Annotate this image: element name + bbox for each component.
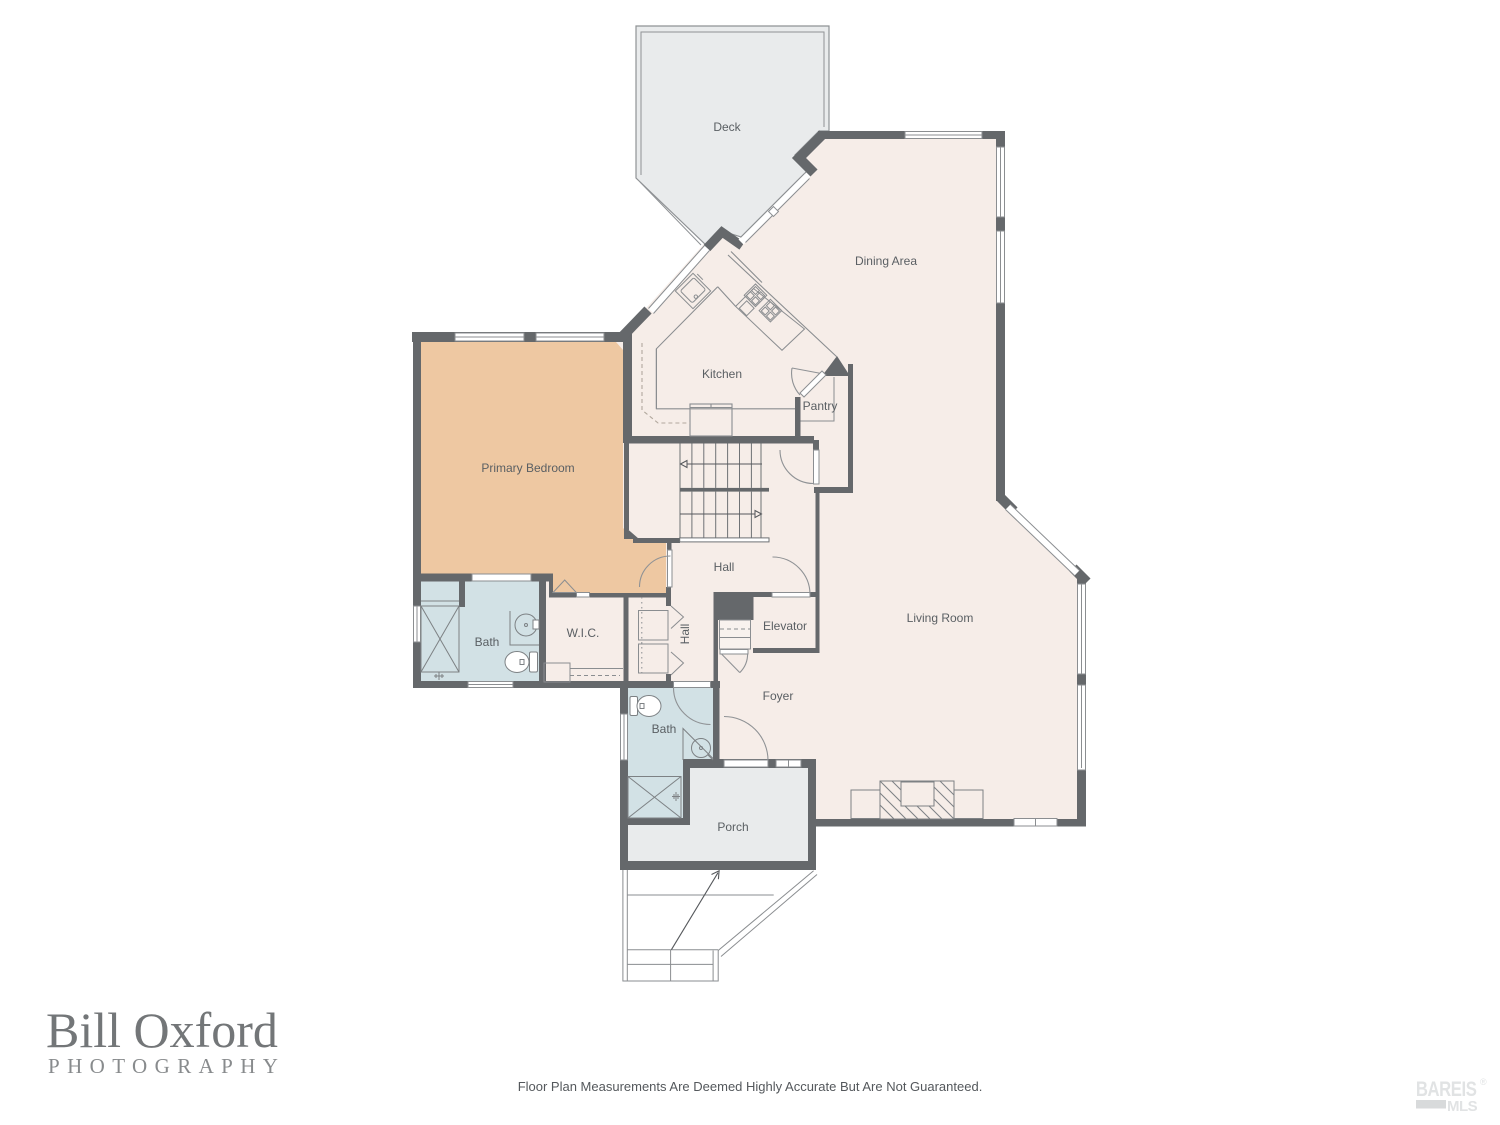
svg-text:Foyer: Foyer: [763, 689, 794, 703]
svg-text:Deck: Deck: [713, 120, 741, 134]
svg-text:W.I.C.: W.I.C.: [567, 626, 600, 640]
svg-text:Bath: Bath: [475, 635, 500, 649]
svg-text:PHOTOGRAPHY: PHOTOGRAPHY: [48, 1054, 285, 1078]
svg-text:Living Room: Living Room: [907, 611, 974, 625]
svg-text:Porch: Porch: [717, 820, 748, 834]
svg-text:Primary Bedroom: Primary Bedroom: [481, 461, 574, 475]
svg-text:Kitchen: Kitchen: [702, 367, 742, 381]
svg-text:Elevator: Elevator: [763, 619, 807, 633]
svg-text:MLS: MLS: [1447, 1098, 1478, 1115]
svg-text:Floor Plan Measurements Are De: Floor Plan Measurements Are Deemed Highl…: [518, 1079, 983, 1094]
svg-text:Dining Area: Dining Area: [855, 254, 917, 268]
svg-text:®: ®: [1480, 1077, 1487, 1087]
svg-text:Bill Oxford: Bill Oxford: [46, 1002, 278, 1058]
svg-text:Hall: Hall: [678, 624, 692, 645]
svg-text:Hall: Hall: [714, 560, 735, 574]
svg-text:Bath: Bath: [652, 722, 677, 736]
svg-text:Pantry: Pantry: [803, 399, 838, 413]
